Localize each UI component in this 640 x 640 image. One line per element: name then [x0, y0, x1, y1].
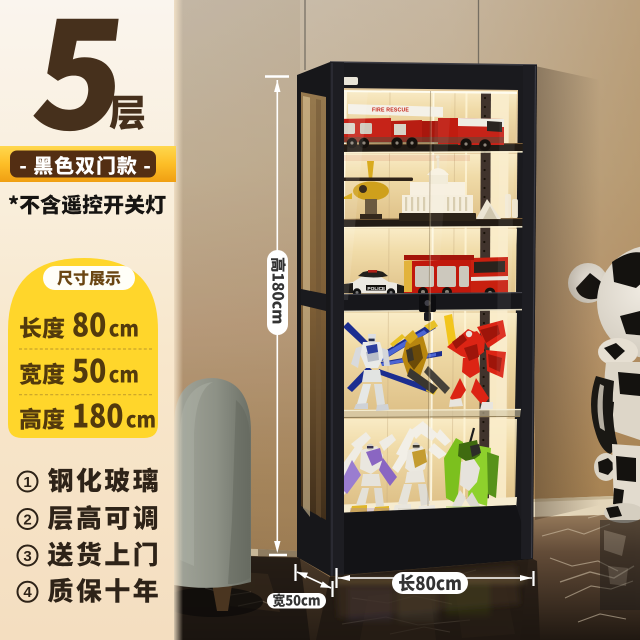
svg-text:4: 4: [23, 584, 32, 601]
svg-text:FIRE RESCUE: FIRE RESCUE: [372, 108, 409, 114]
svg-text:2: 2: [23, 511, 31, 528]
svg-text:1: 1: [23, 474, 31, 491]
svg-text:POLICE: POLICE: [367, 286, 386, 292]
svg-text:3: 3: [23, 548, 31, 565]
